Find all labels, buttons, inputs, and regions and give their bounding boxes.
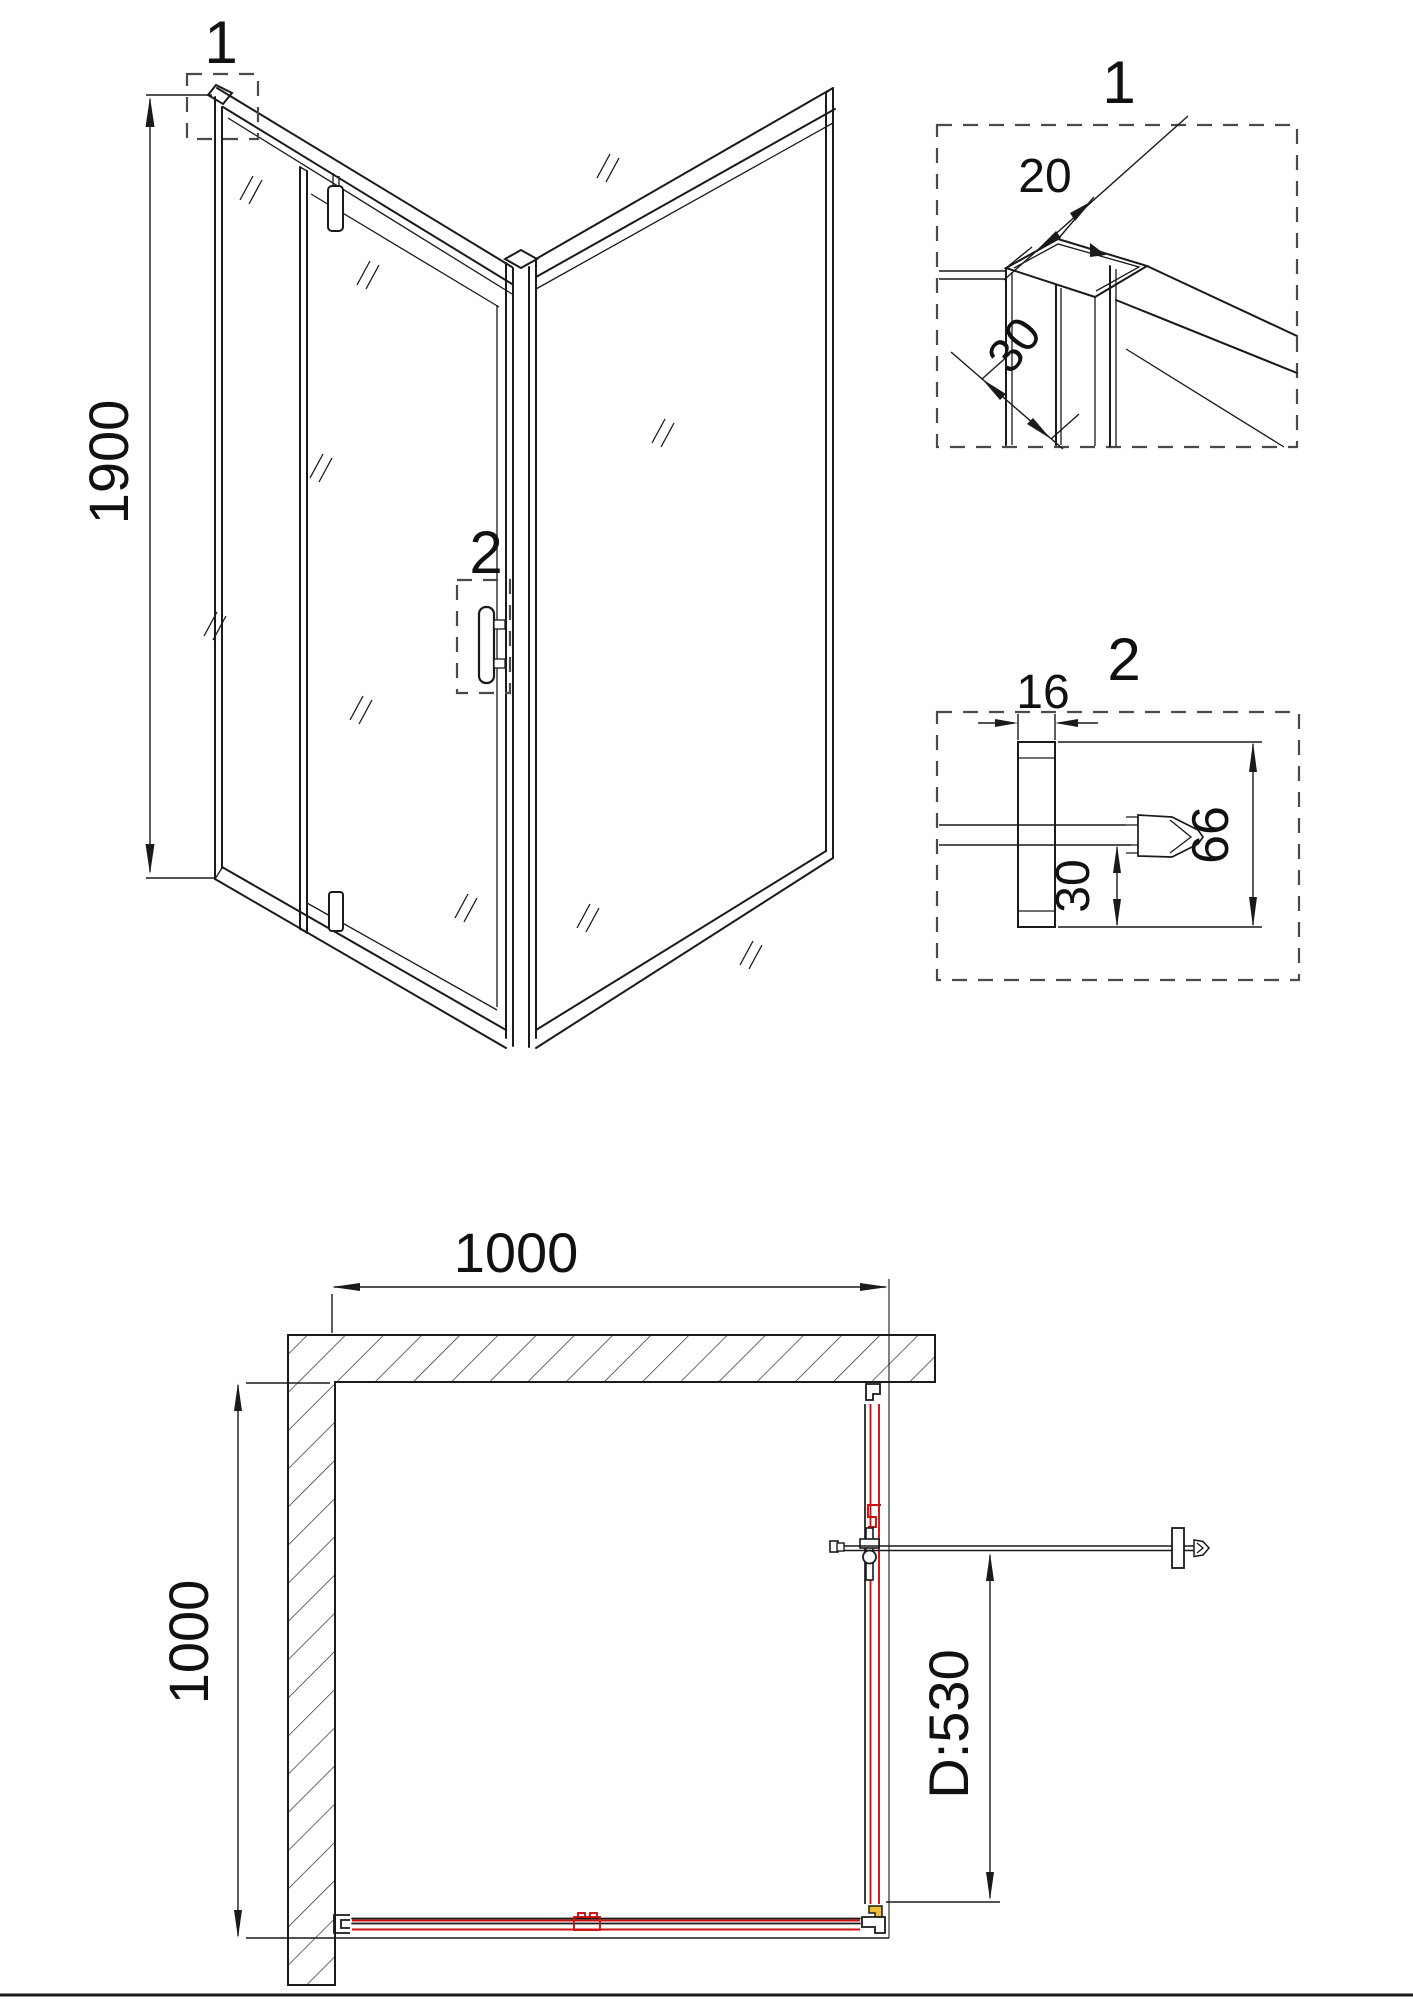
panel-connector	[574, 1913, 600, 1930]
door-bottom-bracket	[329, 892, 343, 931]
detail-2-view: 2 16	[937, 626, 1299, 980]
open-door-handle	[1172, 1528, 1184, 1568]
technical-drawing-canvas: 1900 1 2 1	[0, 0, 1413, 2000]
door-handle	[479, 607, 505, 683]
plan-width-dimension: 1000	[332, 1221, 889, 1938]
plan-door-dimension: D:530	[886, 1553, 1000, 1902]
callout-1-label: 1	[204, 9, 237, 76]
detail-1-label: 1	[1102, 49, 1135, 116]
plan-open-door	[830, 1528, 1209, 1568]
drawing-page: 1900 1 2 1	[0, 0, 1413, 2000]
detail-1-dim-30: 30	[951, 308, 1079, 449]
detail-1-dim-30-label: 30	[977, 308, 1052, 383]
elevation-view: 1900 1 2	[77, 9, 835, 1048]
plan-depth-label: 1000	[157, 1580, 220, 1705]
detail-2-boundary	[937, 712, 1299, 980]
plan-width-label: 1000	[454, 1221, 579, 1284]
plan-depth-dimension: 1000	[157, 1383, 889, 1938]
door-top-hinge	[328, 186, 343, 231]
plan-bottom-panel	[334, 1906, 885, 1933]
height-dimension-label: 1900	[77, 400, 140, 525]
detail-1-boundary	[937, 125, 1297, 447]
door-edge-seal	[1194, 1540, 1209, 1557]
detail-1-dim-20-label: 20	[1018, 150, 1071, 203]
corner-connector	[862, 1906, 885, 1933]
callout-2-label: 2	[469, 519, 502, 586]
detail-2-label: 2	[1107, 626, 1140, 693]
pivot-hinge	[860, 1528, 879, 1580]
detail-2-dim-16-label: 16	[1016, 666, 1069, 719]
detail-1-view: 1 20	[937, 49, 1297, 449]
detail-2-dim-16: 16	[978, 666, 1098, 740]
walls-hatched	[288, 1335, 935, 1985]
plan-view: 1000 1000	[157, 1221, 1209, 1985]
detail-2-dim-66-label: 66	[1182, 806, 1240, 864]
plan-door-column	[860, 1384, 881, 1904]
detail-2-dim-30-label: 30	[1047, 859, 1100, 912]
height-dimension: 1900	[77, 95, 214, 878]
wall-bracket-top	[866, 1384, 880, 1400]
pivot-door	[300, 167, 505, 1010]
side-panel	[536, 88, 835, 1048]
plan-door-label: D:530	[917, 1649, 980, 1798]
detail-1-glass-panel	[1116, 266, 1297, 447]
detail-2-dim-30: 30	[1047, 845, 1131, 927]
wall-bracket-left	[334, 1915, 350, 1933]
